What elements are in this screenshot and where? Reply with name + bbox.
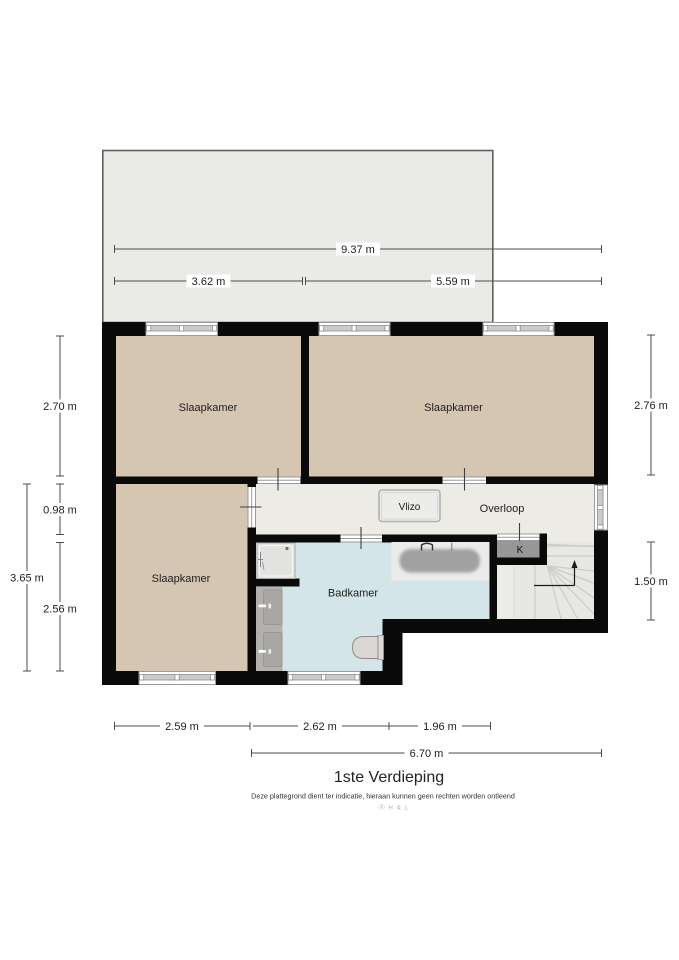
svg-text:2.76 m: 2.76 m [634,400,668,412]
svg-text:2.70 m: 2.70 m [43,401,77,413]
svg-text:2.62 m: 2.62 m [303,721,337,733]
svg-text:2.56 m: 2.56 m [43,604,77,616]
svg-text:Overloop: Overloop [480,503,525,515]
svg-text:2.59 m: 2.59 m [165,721,199,733]
svg-text:5.59 m: 5.59 m [436,276,470,288]
svg-text:3.62 m: 3.62 m [192,276,226,288]
svg-text:0.98 m: 0.98 m [43,505,77,517]
svg-text:3.65 m: 3.65 m [10,573,44,585]
svg-text:1.96 m: 1.96 m [423,721,457,733]
svg-text:Slaapkamer: Slaapkamer [179,402,238,414]
svg-text:Vlizo: Vlizo [399,502,421,513]
svg-text:6.70 m: 6.70 m [410,748,444,760]
svg-text:1.50 m: 1.50 m [634,576,668,588]
svg-text:Slaapkamer: Slaapkamer [424,402,483,414]
svg-text:9.37 m: 9.37 m [341,244,375,256]
svg-text:K: K [517,545,524,556]
svg-text:1ste Verdieping: 1ste Verdieping [334,769,444,786]
svg-text:Badkamer: Badkamer [328,588,378,600]
svg-text:Slaapkamer: Slaapkamer [152,573,211,585]
svg-text:Ⓐ H & L: Ⓐ H & L [378,804,409,812]
svg-text:Deze plattegrond dient ter ind: Deze plattegrond dient ter indicatie, hi… [251,792,515,801]
